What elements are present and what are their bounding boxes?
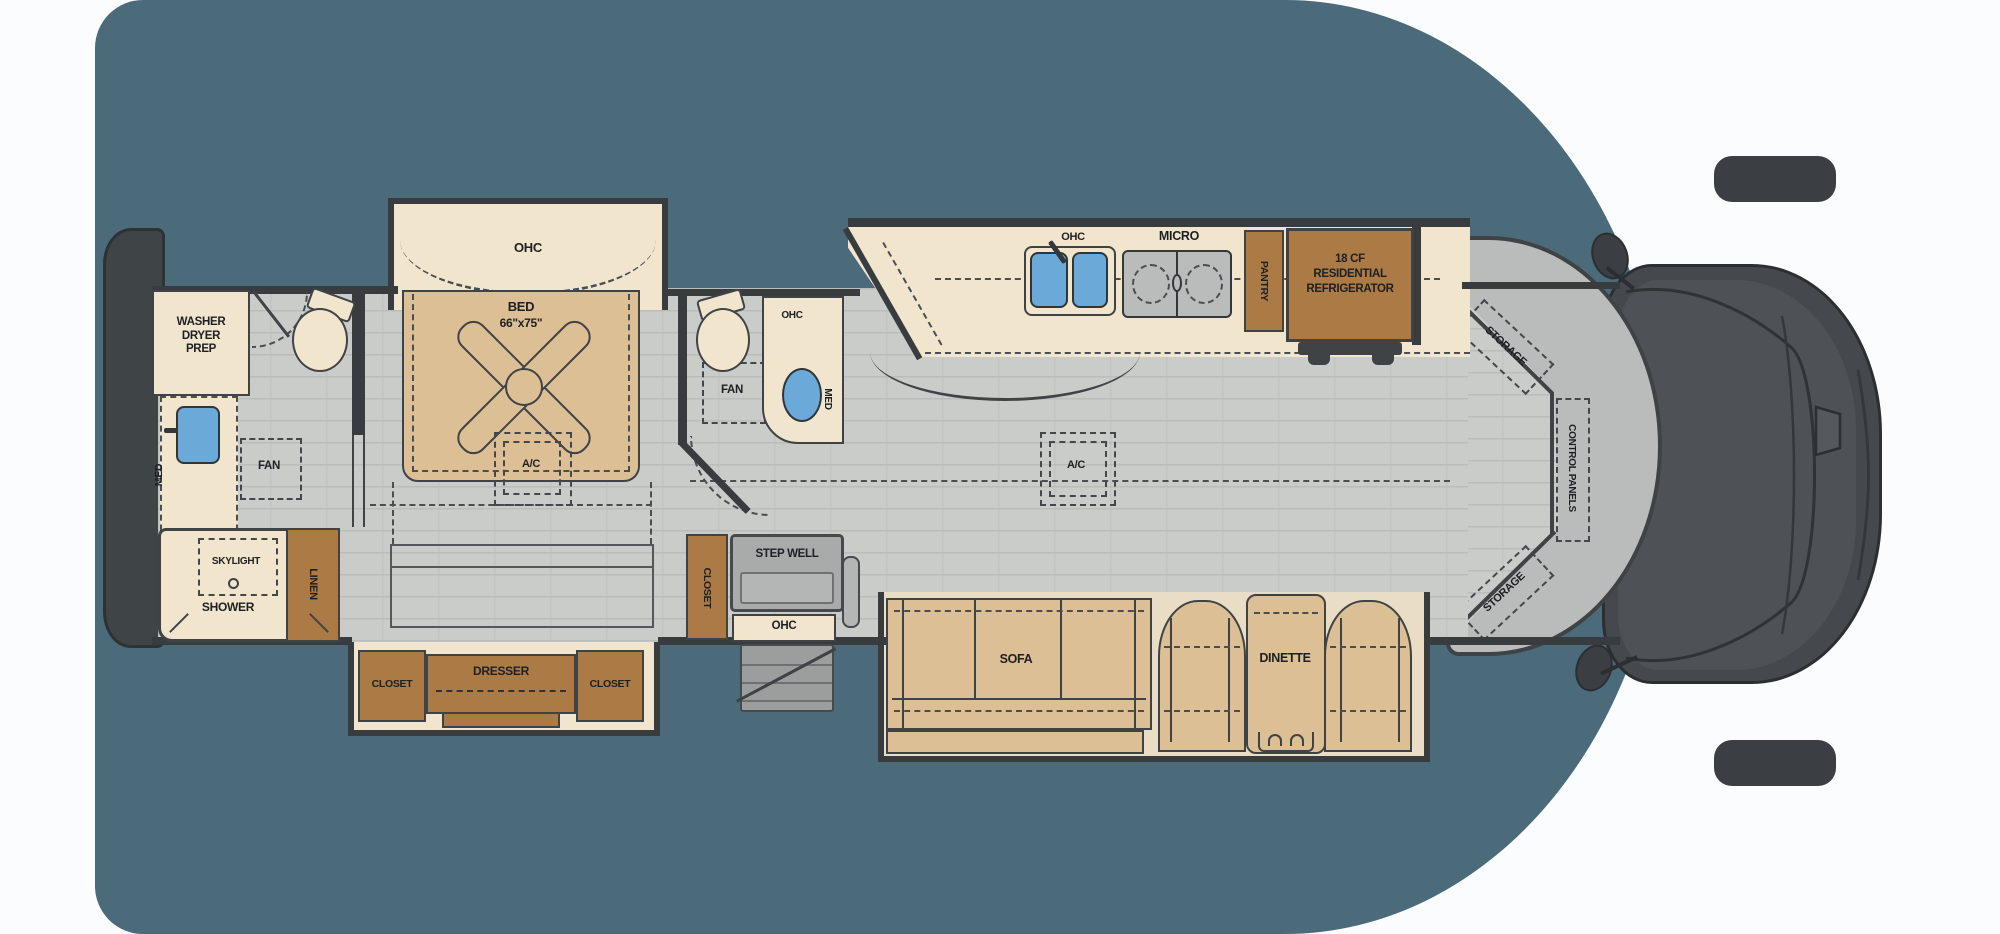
refrigerator-base <box>1298 342 1402 355</box>
wall-midbath-left <box>678 289 687 445</box>
pantry-label: PANTRY <box>1257 231 1271 331</box>
dinette-label: DINETTE <box>1225 651 1345 666</box>
closet-right-label: CLOSET <box>574 678 646 690</box>
dinette-table <box>1246 594 1326 754</box>
midbath-sink <box>782 368 822 422</box>
wall-kitchen-slide-top <box>848 218 1470 227</box>
dinette-pedestal <box>1258 732 1314 752</box>
wall-top-bath <box>662 289 860 296</box>
wall-bath-bedroom <box>352 289 365 435</box>
ceiling-fan-hub-icon <box>505 368 543 406</box>
sofa-seat-dash <box>894 710 1144 712</box>
rear-bath-sink <box>176 406 220 464</box>
pocket-door-track <box>352 435 365 527</box>
bench-dash <box>1330 646 1406 648</box>
closet-left-label: CLOSET <box>356 678 428 690</box>
bench-line <box>1170 618 1172 742</box>
refrigerator-label: 18 CF RESIDENTIAL REFRIGERATOR <box>1286 252 1414 297</box>
step-line <box>742 664 832 666</box>
sofa-back-dash <box>894 610 1144 612</box>
dresser-label: DRESSER <box>426 664 576 678</box>
shower-label: SHOWER <box>158 600 298 614</box>
step-well-inner <box>740 572 834 604</box>
wall-top-front <box>1462 282 1620 289</box>
entry-door-pocket <box>842 556 860 628</box>
slide-travel-line-right <box>650 482 652 544</box>
rear-med-label: MED <box>152 447 166 503</box>
rear-toilet-bowl-icon <box>292 308 348 372</box>
bench-line <box>1228 618 1230 742</box>
rear-faucet-icon <box>164 428 178 433</box>
shower-drain-icon <box>228 578 239 589</box>
entry-closet-label: CLOSET <box>700 528 714 648</box>
cab-top-fender <box>1714 156 1836 202</box>
micro-label: MICRO <box>1137 229 1221 244</box>
cab-bottom-fender <box>1714 740 1836 786</box>
entry-ohc-label: OHC <box>732 620 836 634</box>
rear-fan-label: FAN <box>240 460 298 474</box>
slide-seal-frame-line <box>390 566 654 568</box>
rv-floorplan-diagram: STORAGE CONTROL PANELS STORAGE WASHER DR… <box>0 0 2000 934</box>
slide-seal-frame <box>390 544 654 628</box>
bench-line <box>1398 618 1400 742</box>
table-dash <box>1254 612 1318 614</box>
sofa-seat-line <box>892 698 1146 700</box>
sofa-arm-right <box>1134 600 1150 728</box>
step-line <box>742 700 832 702</box>
cockpit-wedge-line-mid <box>1550 392 1554 534</box>
kitchen-sink-bowl-right <box>1072 252 1108 308</box>
bedroom-ac-label: A/C <box>494 458 568 471</box>
control-panels-label: CONTROL PANELS <box>1564 398 1578 538</box>
sofa-seam-1 <box>974 600 976 700</box>
slide-travel-line-left <box>392 482 394 544</box>
sofa-arm-left <box>888 600 904 728</box>
skylight-label: SKYLIGHT <box>190 556 282 568</box>
midbath-toilet-bowl-icon <box>696 308 750 372</box>
cooktop-knob-icon <box>1172 274 1182 292</box>
refrigerator-foot-right <box>1372 355 1394 365</box>
linen-label: LINEN <box>306 534 320 634</box>
refrigerator-foot-left <box>1308 355 1330 365</box>
sofa-front-skirt <box>886 730 1144 754</box>
dresser-cabinet <box>426 654 576 714</box>
cooktop-burner-left-icon <box>1132 264 1170 304</box>
dinette-bench-left <box>1158 600 1246 752</box>
washer-dryer-prep-label: WASHER DRYER PREP <box>152 316 250 357</box>
midbath-med-label: MED <box>820 359 834 439</box>
wall-bottom-front <box>1425 637 1620 645</box>
cup-hook-icon <box>1290 734 1304 746</box>
kitchen-ohc-label: OHC <box>1043 231 1103 244</box>
bench-line <box>1340 618 1342 742</box>
bedroom-ohc-label: OHC <box>468 240 588 255</box>
bed-label: BED <box>461 299 581 314</box>
bench-dash <box>1164 646 1240 648</box>
dinette-bench-right <box>1324 600 1412 752</box>
cup-hook-icon <box>1268 734 1282 746</box>
step-well-label: STEP WELL <box>730 548 844 562</box>
dresser-front-step <box>442 714 560 728</box>
bench-dash <box>1330 710 1406 712</box>
living-ac-label: A/C <box>1040 459 1112 472</box>
midbath-ohc-label: OHC <box>760 310 824 322</box>
midbath-fan-label: FAN <box>702 384 762 398</box>
bench-dash <box>1164 710 1240 712</box>
dresser-hardware-line <box>436 690 566 692</box>
sofa-seam-2 <box>1060 600 1062 700</box>
bed-size-label: 66"x75" <box>461 316 581 330</box>
sofa-label: SOFA <box>956 652 1076 667</box>
cooktop-burner-right-icon <box>1185 264 1223 304</box>
step-line <box>742 682 832 684</box>
